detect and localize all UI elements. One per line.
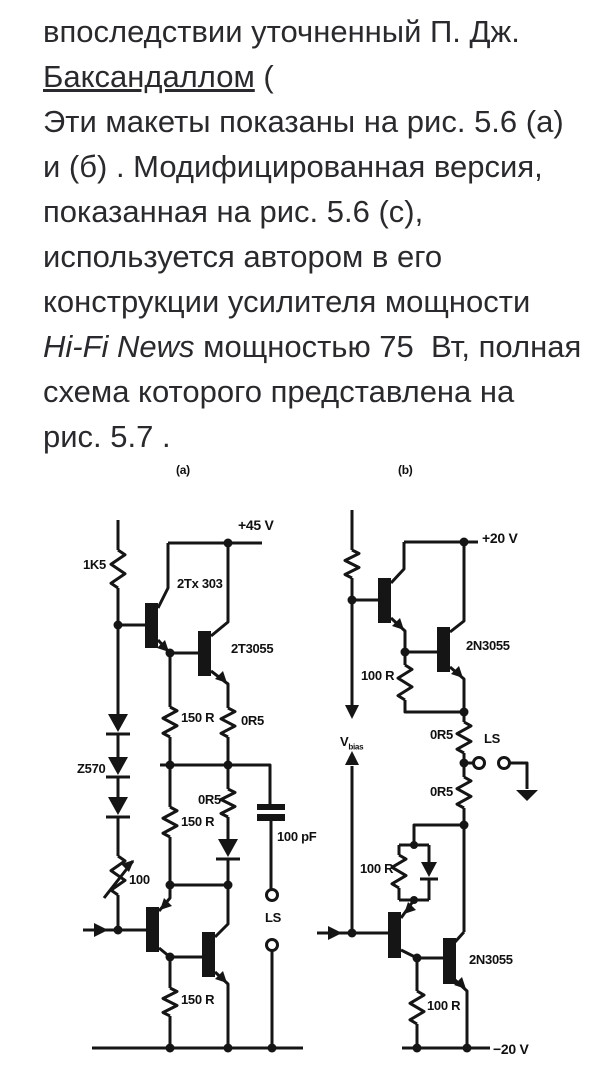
resistor-150r-2-label: 150 R <box>181 815 214 828</box>
transistor-bodies-a <box>145 603 215 977</box>
text-line: используется автором в его <box>43 234 603 279</box>
text-line: схема которого представлена на <box>43 369 603 414</box>
transistor-2tx303-label: 2Tx 303 <box>177 577 223 590</box>
speaker-b-label: LS <box>484 732 500 745</box>
resistor-0r5-b1-label: 0R5 <box>430 728 453 741</box>
resistor-0r5-a1-label: 0R5 <box>241 714 264 727</box>
text-line: впоследствии уточненный П. Дж. <box>43 9 603 54</box>
text-line: Баксандаллом ( <box>43 54 603 99</box>
text-segment: конструкции усилителя мощности <box>43 284 530 319</box>
text-segment: мощностью 75 Вт, полная <box>195 329 582 364</box>
transistor-2t3055-label: 2T3055 <box>231 642 273 655</box>
resistor-150r-1-label: 150 R <box>181 711 214 724</box>
resistor-150r-3-label: 150 R <box>181 993 214 1006</box>
text-line: показанная на рис. 5.6 (с), <box>43 189 603 234</box>
text-segment: и (б) . Модифицированная версия, <box>43 149 543 184</box>
text-segment: схема которого представлена на <box>43 374 514 409</box>
wires-a <box>83 520 303 1048</box>
trimmer-100-label: 100 <box>129 873 150 886</box>
resistor-1k5-label: 1K5 <box>83 558 106 571</box>
text-segment: используется автором в его <box>43 239 442 274</box>
text-line: конструкции усилителя мощности <box>43 279 603 324</box>
text-segment: Эти макеты показаны на рис. 5.6 (а) <box>43 104 564 139</box>
resistor-100r-b2-label: 100 R <box>360 862 393 875</box>
speaker-a-label: LS <box>265 911 281 924</box>
text-line: рис. 5.7 . <box>43 414 603 459</box>
link-baksandall[interactable]: Баксандаллом <box>43 59 255 94</box>
transistor-bar <box>198 631 211 676</box>
paragraph: впоследствии уточненный П. Дж.Баксандалл… <box>43 9 603 459</box>
speaker-terminals-b <box>474 758 510 769</box>
transistor-bar <box>145 603 158 648</box>
resistor-100r-b3-label: 100 R <box>427 999 460 1012</box>
text-line: Эти макеты показаны на рис. 5.6 (а) <box>43 99 603 144</box>
resistor-100r-b1-label: 100 R <box>361 669 394 682</box>
resistor-0r5-b2-label: 0R5 <box>430 785 453 798</box>
panel-a-label: (a) <box>176 464 190 476</box>
text-segment: показанная на рис. 5.6 (с), <box>43 194 423 229</box>
transistor-bar <box>202 932 215 977</box>
supply-pos-b-label: +20 V <box>482 531 517 545</box>
transistor-bar <box>378 578 391 623</box>
transistor-bodies-b <box>378 578 456 984</box>
transistor-bar <box>146 907 159 952</box>
transistor-2n3055-1-label: 2N3055 <box>466 639 510 652</box>
text-segment: рис. 5.7 . <box>43 419 171 454</box>
text-line: и (б) . Модифицированная версия, <box>43 144 603 189</box>
circuit-a <box>83 520 303 1053</box>
diode-z570-label: Z570 <box>77 762 105 775</box>
transistor-bar <box>388 912 401 958</box>
document-page: (a)+45 V1K52Tx 3032T3055150 R0R5Z5700R51… <box>0 0 614 1080</box>
italic-text: Hi-Fi News <box>43 329 195 364</box>
junction-dots-a <box>114 539 277 1053</box>
transistor-bar <box>443 938 456 984</box>
text-line: Hi-Fi News мощностью 75 Вт, полная <box>43 324 603 369</box>
supply-neg-b-label: −20 V <box>493 1042 528 1056</box>
capacitor-100pf <box>257 804 285 821</box>
resistors-a <box>111 550 235 1016</box>
vbias-label: Vbias <box>340 735 363 752</box>
text-segment: впоследствии уточненный П. Дж. <box>43 14 520 49</box>
resistor-0r5-a2-label: 0R5 <box>198 793 221 806</box>
capacitor-100pf-label: 100 pF <box>277 830 316 843</box>
ground-symbol <box>516 790 538 801</box>
transistor-2n3055-2-label: 2N3055 <box>469 953 513 966</box>
text-segment: ( <box>255 59 274 94</box>
wires-b <box>317 510 527 1048</box>
circuit-b <box>317 510 538 1053</box>
vbias-label-subscript: bias <box>348 743 363 752</box>
supply-pos-a-label: +45 V <box>238 518 273 532</box>
transistor-bar <box>437 627 450 672</box>
diode-triangle-b <box>421 862 437 877</box>
panel-b-label: (b) <box>398 464 412 476</box>
